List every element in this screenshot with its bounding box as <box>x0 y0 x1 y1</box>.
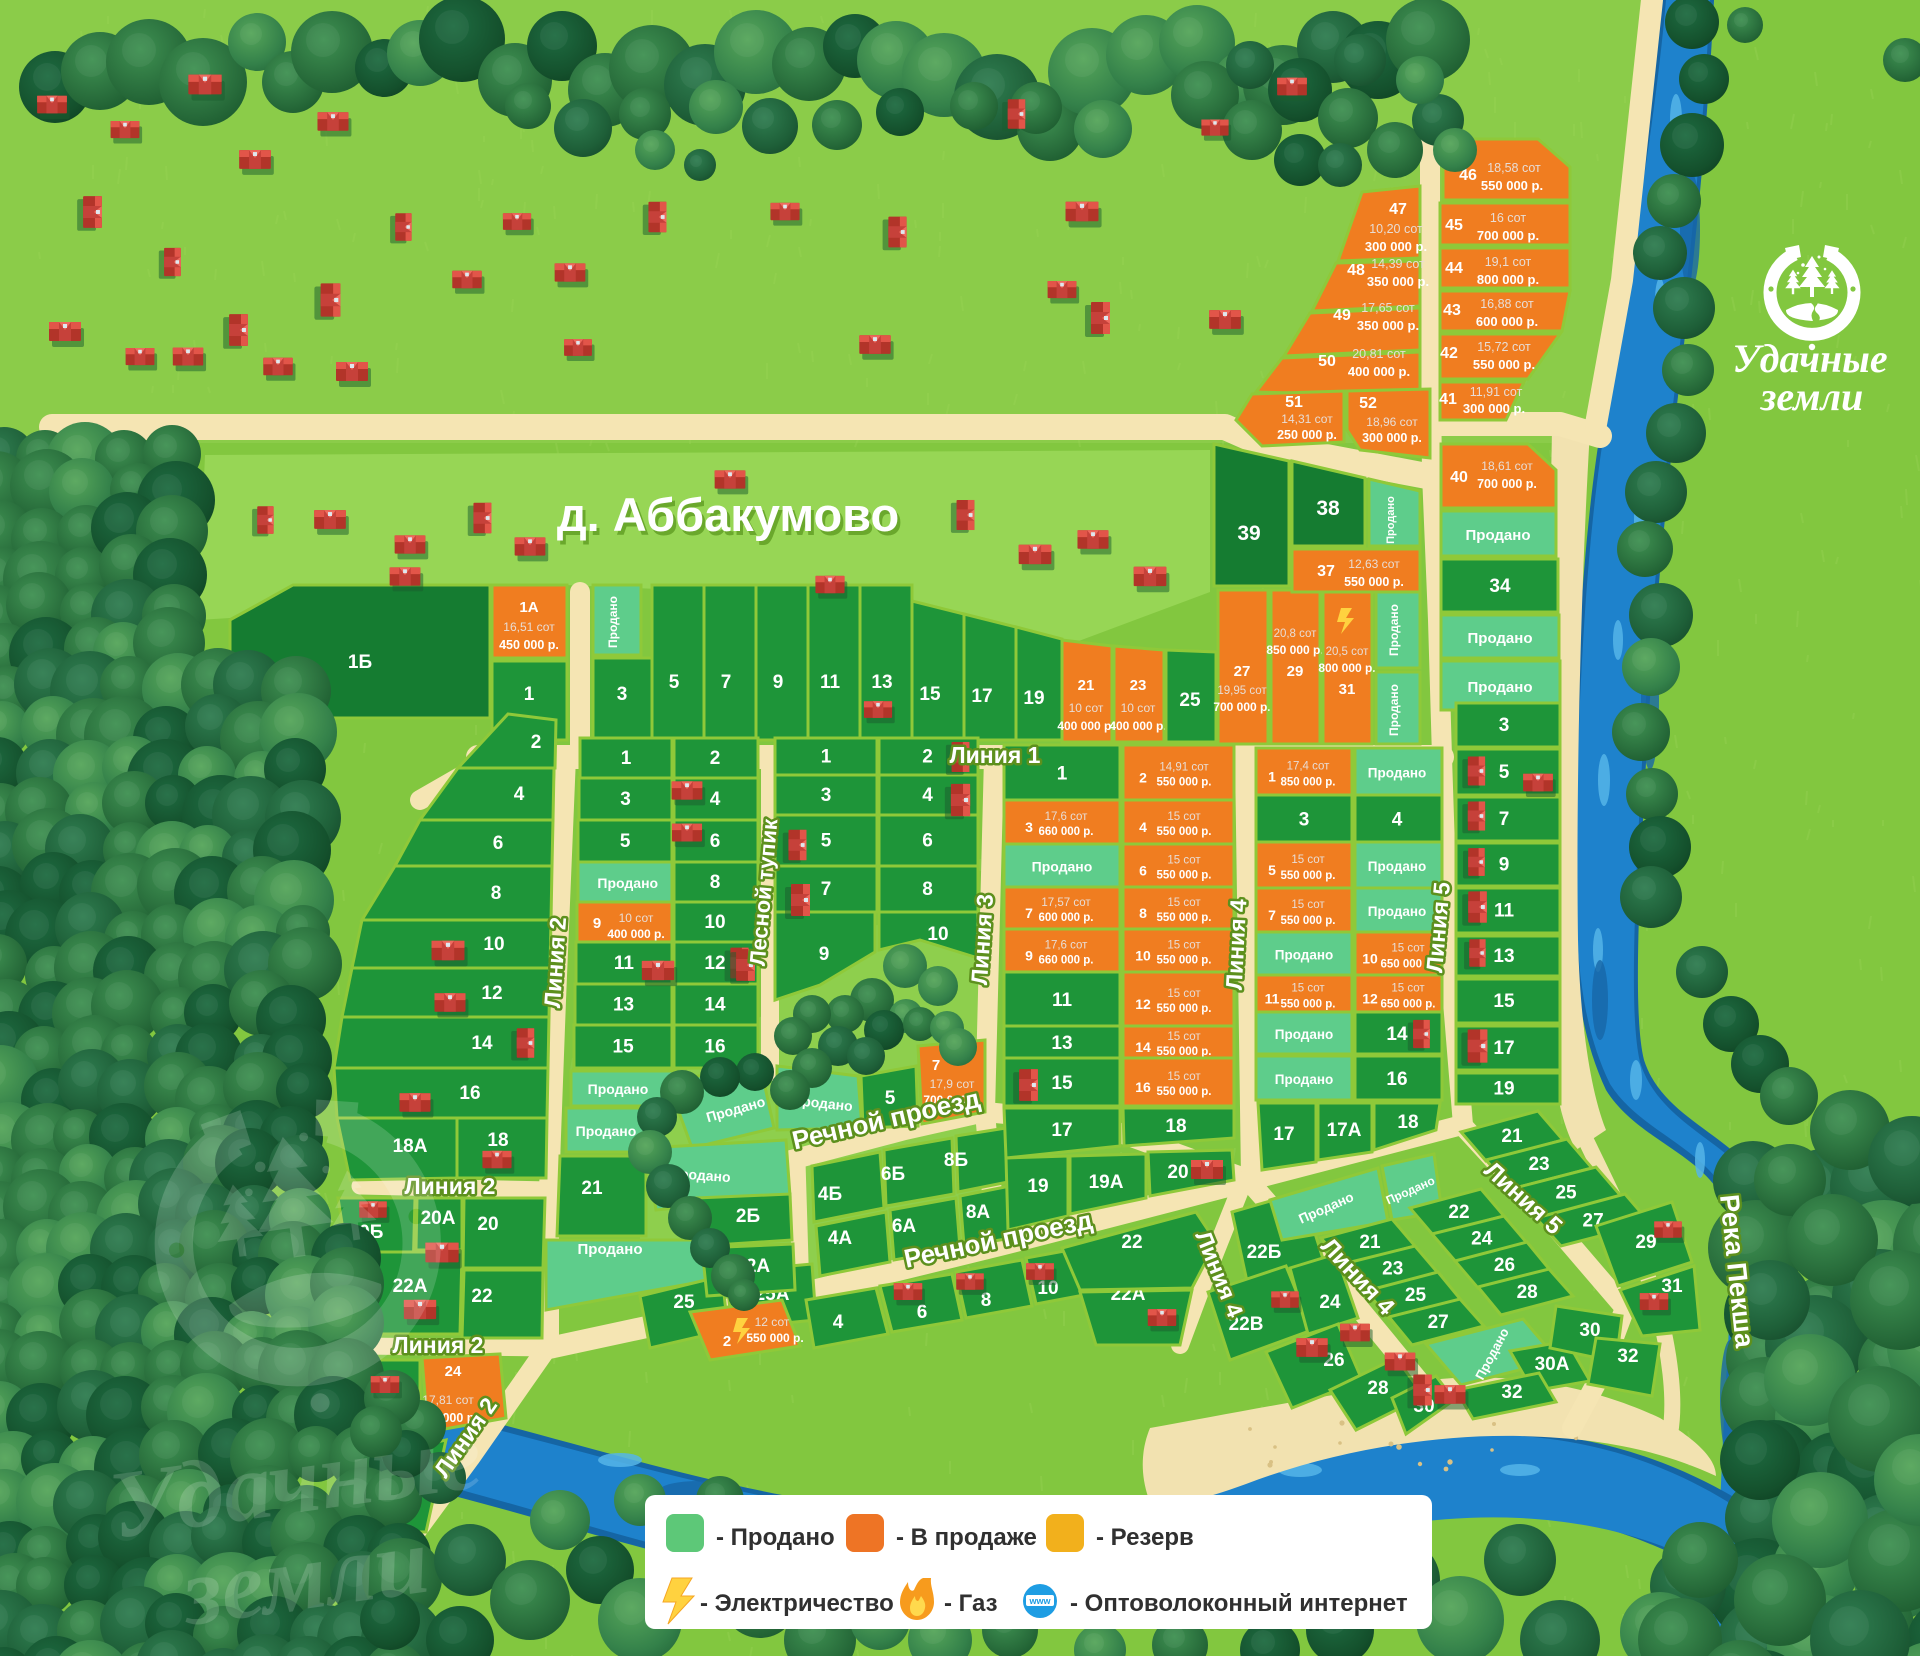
svg-text:4: 4 <box>514 784 525 805</box>
svg-text:52: 52 <box>1359 395 1377 412</box>
svg-text:Продано: Продано <box>588 1081 649 1097</box>
svg-text:11: 11 <box>1052 990 1073 1011</box>
svg-text:25: 25 <box>1405 1285 1427 1306</box>
svg-text:32: 32 <box>1501 1382 1522 1403</box>
svg-text:10 сот: 10 сот <box>1069 701 1104 715</box>
svg-text:земли: земли <box>1760 374 1864 419</box>
svg-text:25: 25 <box>673 1292 695 1313</box>
svg-text:13: 13 <box>1051 1033 1072 1054</box>
svg-text:350 000 р.: 350 000 р. <box>1367 274 1429 289</box>
svg-text:18,61 сот: 18,61 сот <box>1481 459 1533 473</box>
svg-text:22: 22 <box>1448 1202 1469 1223</box>
svg-text:13: 13 <box>613 995 634 1016</box>
svg-text:39: 39 <box>1237 522 1260 545</box>
svg-text:45: 45 <box>1445 217 1463 234</box>
svg-text:8: 8 <box>491 883 502 904</box>
svg-text:3: 3 <box>1499 715 1510 736</box>
svg-text:Продано: Продано <box>1387 684 1401 736</box>
svg-text:19: 19 <box>1027 1176 1048 1197</box>
svg-text:13: 13 <box>1493 946 1514 967</box>
svg-text:20: 20 <box>1167 1162 1188 1183</box>
svg-text:400 000 р.: 400 000 р. <box>607 927 664 941</box>
svg-text:Продано: Продано <box>1387 604 1401 656</box>
svg-text:6Б: 6Б <box>881 1164 905 1185</box>
svg-text:- Электричество: - Электричество <box>700 1590 894 1617</box>
svg-text:1Б: 1Б <box>348 652 372 673</box>
svg-text:- Резерв: - Резерв <box>1096 1524 1194 1551</box>
svg-text:550 000 р.: 550 000 р. <box>1157 1003 1212 1015</box>
svg-text:21: 21 <box>1501 1126 1523 1147</box>
svg-text:www: www <box>1028 1596 1051 1606</box>
svg-text:8Б: 8Б <box>944 1150 968 1171</box>
svg-text:550 000 р.: 550 000 р. <box>1157 826 1212 838</box>
svg-text:51: 51 <box>1285 394 1303 411</box>
svg-text:21: 21 <box>1359 1232 1381 1253</box>
svg-text:7: 7 <box>932 1057 940 1074</box>
svg-text:17,57 сот: 17,57 сот <box>1041 897 1091 909</box>
svg-text:550 000 р.: 550 000 р. <box>1157 777 1212 789</box>
svg-text:5: 5 <box>620 831 631 852</box>
svg-text:43: 43 <box>1443 302 1461 319</box>
svg-text:400 000 р.: 400 000 р. <box>1057 719 1114 733</box>
svg-text:600 000 р.: 600 000 р. <box>1476 314 1538 329</box>
svg-text:4Б: 4Б <box>818 1184 842 1205</box>
svg-text:5: 5 <box>669 672 680 693</box>
svg-text:25: 25 <box>1555 1182 1577 1203</box>
svg-text:15: 15 <box>1493 991 1515 1012</box>
svg-text:32: 32 <box>1617 1346 1638 1367</box>
svg-text:21: 21 <box>1078 677 1095 694</box>
svg-text:20,8 сот: 20,8 сот <box>1274 628 1318 640</box>
svg-text:41: 41 <box>1439 391 1457 408</box>
svg-text:4: 4 <box>710 789 721 810</box>
svg-text:12,63 сот: 12,63 сот <box>1348 557 1400 571</box>
svg-text:2Б: 2Б <box>736 1206 760 1227</box>
svg-text:4: 4 <box>1392 810 1403 831</box>
svg-text:15 сот: 15 сот <box>1391 983 1425 995</box>
svg-text:Продано: Продано <box>1466 527 1531 544</box>
svg-text:6: 6 <box>922 831 933 852</box>
svg-text:25: 25 <box>1179 690 1201 711</box>
svg-text:2: 2 <box>1139 770 1147 786</box>
svg-text:10: 10 <box>1362 951 1378 967</box>
svg-text:16: 16 <box>459 1083 480 1104</box>
svg-text:27: 27 <box>1234 663 1251 680</box>
svg-text:1А: 1А <box>519 599 538 616</box>
svg-text:11,91 сот: 11,91 сот <box>1470 385 1523 399</box>
svg-text:10 сот: 10 сот <box>1121 701 1156 715</box>
svg-text:19: 19 <box>1023 688 1044 709</box>
svg-text:12: 12 <box>481 983 502 1004</box>
svg-text:42: 42 <box>1440 345 1458 362</box>
svg-text:23: 23 <box>1130 677 1147 694</box>
svg-text:15 сот: 15 сот <box>1291 854 1325 866</box>
svg-text:- Продано: - Продано <box>716 1524 835 1551</box>
svg-text:12: 12 <box>1362 991 1378 1007</box>
svg-text:8: 8 <box>710 872 721 893</box>
svg-text:5: 5 <box>1268 862 1276 878</box>
svg-text:Продано: Продано <box>1468 679 1533 696</box>
svg-text:15,72 сот: 15,72 сот <box>1477 340 1531 354</box>
svg-text:17,4 сот: 17,4 сот <box>1287 761 1331 773</box>
svg-text:4: 4 <box>833 1312 844 1333</box>
svg-text:4А: 4А <box>828 1228 853 1249</box>
svg-text:19,95 сот: 19,95 сот <box>1217 685 1267 697</box>
svg-text:- В продаже: - В продаже <box>896 1524 1037 1551</box>
svg-text:15: 15 <box>919 684 941 705</box>
svg-text:5: 5 <box>1499 762 1510 783</box>
svg-text:11: 11 <box>614 953 635 974</box>
svg-text:15 сот: 15 сот <box>1167 988 1201 1000</box>
svg-text:16,88 сот: 16,88 сот <box>1480 297 1534 311</box>
svg-text:1: 1 <box>621 748 632 769</box>
svg-text:800 000 р.: 800 000 р. <box>1477 272 1539 287</box>
svg-text:10 сот: 10 сот <box>619 911 654 925</box>
svg-text:15 сот: 15 сот <box>1291 899 1325 911</box>
svg-text:5: 5 <box>821 831 832 852</box>
svg-text:7: 7 <box>1499 809 1510 830</box>
svg-text:18,58 сот: 18,58 сот <box>1487 161 1541 175</box>
svg-text:10: 10 <box>1135 948 1151 964</box>
svg-text:6: 6 <box>493 833 504 854</box>
svg-text:23: 23 <box>1528 1154 1549 1175</box>
svg-text:Продано: Продано <box>597 875 658 891</box>
svg-text:11: 11 <box>1265 991 1280 1007</box>
svg-text:Продано: Продано <box>1275 948 1334 963</box>
svg-text:Продано: Продано <box>1368 904 1427 919</box>
svg-text:29: 29 <box>1635 1232 1656 1253</box>
svg-text:Продано: Продано <box>1385 496 1397 544</box>
svg-text:22: 22 <box>1121 1232 1142 1253</box>
svg-text:550 000 р.: 550 000 р. <box>1157 1046 1212 1058</box>
svg-text:10: 10 <box>483 934 504 955</box>
svg-text:Продано: Продано <box>1275 1072 1334 1087</box>
svg-text:47: 47 <box>1389 201 1407 218</box>
svg-text:2: 2 <box>723 1333 731 1350</box>
svg-text:- Газ: - Газ <box>944 1590 998 1617</box>
svg-text:11: 11 <box>1494 901 1515 922</box>
svg-text:28: 28 <box>1367 1378 1388 1399</box>
svg-text:15 сот: 15 сот <box>1391 943 1425 955</box>
svg-text:24: 24 <box>1471 1229 1493 1250</box>
svg-text:д. Аббакумово: д. Аббакумово <box>557 488 899 541</box>
svg-text:660 000 р.: 660 000 р. <box>1039 955 1094 967</box>
svg-text:14,31 сот: 14,31 сот <box>1281 412 1333 426</box>
svg-text:8А: 8А <box>966 1202 991 1223</box>
svg-text:300 000 р.: 300 000 р. <box>1365 239 1427 254</box>
svg-text:550 000 р.: 550 000 р. <box>1157 955 1212 967</box>
svg-text:23: 23 <box>1382 1259 1403 1280</box>
svg-text:700 000 р.: 700 000 р. <box>1477 228 1539 243</box>
svg-text:350 000 р.: 350 000 р. <box>1357 318 1419 333</box>
svg-text:1: 1 <box>1268 769 1276 785</box>
svg-text:8: 8 <box>922 879 933 900</box>
svg-text:19: 19 <box>1493 1079 1514 1100</box>
svg-text:4: 4 <box>1139 819 1147 835</box>
svg-text:550 000 р.: 550 000 р. <box>1281 999 1336 1011</box>
svg-text:450 000 р.: 450 000 р. <box>499 638 559 652</box>
svg-text:17А: 17А <box>1327 1120 1362 1141</box>
svg-text:17,6 сот: 17,6 сот <box>1045 940 1089 952</box>
svg-text:8: 8 <box>1139 905 1147 921</box>
svg-text:18,96 сот: 18,96 сот <box>1366 415 1418 429</box>
svg-text:600 000 р.: 600 000 р. <box>1039 912 1094 924</box>
svg-text:6А: 6А <box>892 1216 917 1237</box>
svg-text:650 000 р.: 650 000 р. <box>1381 999 1436 1011</box>
svg-text:10: 10 <box>704 912 725 933</box>
svg-text:7: 7 <box>1268 907 1276 923</box>
svg-text:550 000 р.: 550 000 р. <box>1481 178 1543 193</box>
svg-text:16: 16 <box>704 1037 725 1058</box>
svg-text:550 000 р.: 550 000 р. <box>1157 912 1212 924</box>
svg-text:9: 9 <box>1499 855 1510 876</box>
svg-text:9: 9 <box>1025 948 1033 964</box>
svg-text:1: 1 <box>1057 764 1068 785</box>
svg-text:550 000 р.: 550 000 р. <box>746 1331 803 1345</box>
svg-text:550 000 р.: 550 000 р. <box>1281 915 1336 927</box>
svg-text:14,91 сот: 14,91 сот <box>1159 762 1209 774</box>
svg-text:400 000 р.: 400 000 р. <box>1348 364 1410 379</box>
svg-text:24: 24 <box>445 1363 462 1380</box>
svg-text:18: 18 <box>1397 1112 1418 1133</box>
svg-text:3: 3 <box>617 684 628 705</box>
svg-text:7: 7 <box>721 672 732 693</box>
svg-text:20,5 сот: 20,5 сот <box>1326 646 1370 658</box>
svg-text:12: 12 <box>1135 996 1151 1012</box>
svg-text:14: 14 <box>471 1033 493 1054</box>
svg-text:700 000 р.: 700 000 р. <box>1477 477 1537 491</box>
svg-text:22: 22 <box>471 1286 492 1307</box>
svg-text:15: 15 <box>1051 1073 1073 1094</box>
svg-text:700 000 р.: 700 000 р. <box>1213 700 1270 714</box>
svg-text:31: 31 <box>1339 681 1356 698</box>
svg-text:20: 20 <box>477 1214 498 1235</box>
svg-text:Продано: Продано <box>1368 766 1427 781</box>
svg-text:9: 9 <box>819 944 830 965</box>
svg-text:17,65 сот: 17,65 сот <box>1361 301 1415 315</box>
svg-text:Продано: Продано <box>1468 630 1533 647</box>
svg-text:10: 10 <box>927 924 948 945</box>
svg-text:400 000 р.: 400 000 р. <box>1109 719 1166 733</box>
svg-text:15 сот: 15 сот <box>1167 897 1201 909</box>
svg-text:26: 26 <box>1494 1255 1515 1276</box>
svg-text:16: 16 <box>1135 1079 1151 1095</box>
svg-text:16: 16 <box>1386 1069 1407 1090</box>
svg-text:21: 21 <box>581 1178 603 1199</box>
svg-text:550 000 р.: 550 000 р. <box>1344 575 1404 589</box>
svg-text:6: 6 <box>1139 863 1147 879</box>
svg-text:7: 7 <box>1025 905 1033 921</box>
svg-text:12 сот: 12 сот <box>755 1315 790 1329</box>
svg-text:550 000 р.: 550 000 р. <box>1157 1086 1212 1098</box>
svg-text:300 000 р.: 300 000 р. <box>1362 431 1422 445</box>
svg-text:17: 17 <box>1051 1120 1072 1141</box>
svg-text:49: 49 <box>1333 307 1351 324</box>
svg-text:29: 29 <box>1287 663 1304 680</box>
svg-text:550 000 р.: 550 000 р. <box>1473 357 1535 372</box>
svg-text:800 000 р.: 800 000 р. <box>1318 661 1375 675</box>
svg-text:550 000 р.: 550 000 р. <box>1281 870 1336 882</box>
svg-text:24: 24 <box>1319 1292 1341 1313</box>
svg-text:40: 40 <box>1450 469 1468 486</box>
svg-text:37: 37 <box>1317 563 1335 580</box>
svg-text:19,1 сот: 19,1 сот <box>1485 255 1532 269</box>
svg-text:7: 7 <box>821 879 832 900</box>
svg-text:18: 18 <box>1165 1116 1186 1137</box>
svg-text:50: 50 <box>1318 353 1336 370</box>
svg-text:17,6 сот: 17,6 сот <box>1045 811 1089 823</box>
svg-text:4: 4 <box>922 785 933 806</box>
svg-text:1: 1 <box>821 747 832 768</box>
svg-text:16,51 сот: 16,51 сот <box>503 620 555 634</box>
svg-text:3: 3 <box>1299 810 1310 831</box>
svg-text:17: 17 <box>1493 1038 1514 1059</box>
svg-text:10,20 сот: 10,20 сот <box>1369 222 1423 236</box>
svg-text:27: 27 <box>1428 1312 1449 1333</box>
svg-text:15: 15 <box>613 1037 635 1058</box>
svg-text:34: 34 <box>1489 576 1511 597</box>
svg-text:Продано: Продано <box>576 1123 637 1139</box>
svg-text:660 000 р.: 660 000 р. <box>1039 826 1094 838</box>
svg-text:1: 1 <box>524 684 535 705</box>
svg-text:Продано: Продано <box>578 1241 643 1258</box>
svg-text:Продано: Продано <box>1032 859 1093 875</box>
svg-text:300 000 р.: 300 000 р. <box>1463 401 1525 416</box>
svg-text:3: 3 <box>1025 819 1033 835</box>
svg-text:19А: 19А <box>1089 1172 1124 1193</box>
svg-text:850 000 р.: 850 000 р. <box>1266 643 1323 657</box>
svg-text:14: 14 <box>704 995 726 1016</box>
svg-text:15 сот: 15 сот <box>1167 940 1201 952</box>
svg-text:- Оптоволоконный интернет: - Оптоволоконный интернет <box>1070 1590 1408 1617</box>
svg-text:14: 14 <box>1135 1039 1151 1055</box>
svg-text:14: 14 <box>1386 1024 1408 1045</box>
svg-text:13: 13 <box>871 672 892 693</box>
svg-text:15 сот: 15 сот <box>1167 855 1201 867</box>
svg-text:Линия 4: Линия 4 <box>1221 898 1252 990</box>
svg-text:2: 2 <box>531 732 542 753</box>
svg-text:16 сот: 16 сот <box>1490 211 1526 225</box>
svg-text:550 000 р.: 550 000 р. <box>1157 870 1212 882</box>
svg-text:Продано: Продано <box>1275 1027 1334 1042</box>
svg-text:9: 9 <box>773 672 784 693</box>
svg-text:2: 2 <box>710 748 721 769</box>
svg-text:15 сот: 15 сот <box>1167 1071 1201 1083</box>
svg-text:9: 9 <box>593 915 601 932</box>
svg-text:12: 12 <box>704 953 725 974</box>
svg-text:2: 2 <box>922 747 933 768</box>
svg-text:15 сот: 15 сот <box>1167 1031 1201 1043</box>
svg-text:15 сот: 15 сот <box>1167 811 1201 823</box>
svg-text:Продано: Продано <box>606 596 620 648</box>
svg-text:17: 17 <box>1273 1124 1294 1145</box>
svg-text:17: 17 <box>971 686 992 707</box>
svg-text:28: 28 <box>1517 1282 1538 1303</box>
svg-text:Продано: Продано <box>1368 859 1427 874</box>
svg-text:14,39 сот: 14,39 сот <box>1371 257 1425 271</box>
svg-text:48: 48 <box>1347 262 1365 279</box>
svg-text:44: 44 <box>1445 260 1463 277</box>
svg-text:6: 6 <box>710 831 721 852</box>
svg-text:18: 18 <box>487 1130 508 1151</box>
svg-text:Линия 1: Линия 1 <box>950 742 1041 768</box>
svg-text:15 сот: 15 сот <box>1291 983 1325 995</box>
svg-text:20,81 сот: 20,81 сот <box>1352 347 1406 361</box>
svg-text:38: 38 <box>1316 497 1340 520</box>
svg-text:3: 3 <box>821 785 832 806</box>
svg-text:850 000 р.: 850 000 р. <box>1281 777 1336 789</box>
svg-text:11: 11 <box>820 672 841 693</box>
svg-text:3: 3 <box>620 789 631 810</box>
svg-text:250 000 р.: 250 000 р. <box>1277 428 1337 442</box>
svg-text:22Б: 22Б <box>1247 1242 1282 1263</box>
